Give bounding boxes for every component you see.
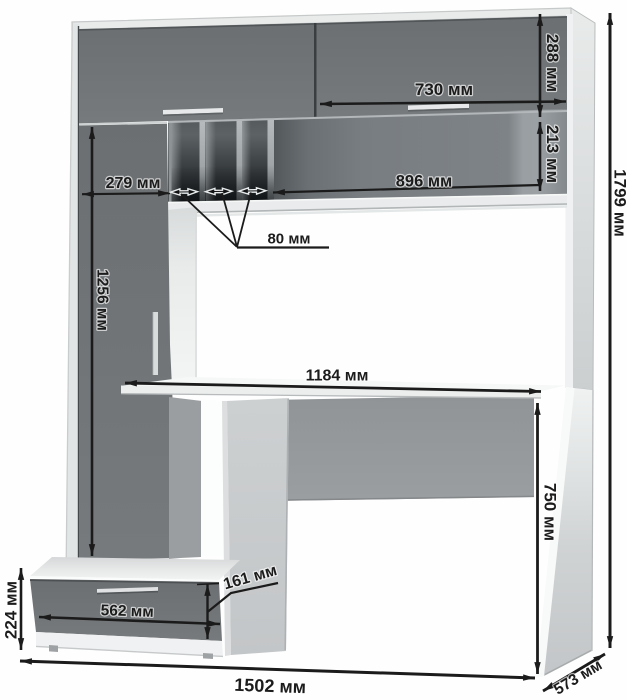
svg-text:896 мм: 896 мм (396, 173, 453, 191)
svg-text:1184 мм: 1184 мм (306, 368, 369, 385)
svg-text:1256 мм: 1256 мм (94, 269, 111, 331)
svg-text:279 мм: 279 мм (106, 175, 161, 192)
svg-text:288 мм: 288 мм (543, 34, 562, 92)
svg-text:562 мм: 562 мм (100, 602, 154, 621)
svg-text:730 мм: 730 мм (415, 80, 473, 99)
svg-text:750 мм: 750 мм (541, 483, 560, 541)
svg-text:80 мм: 80 мм (267, 231, 310, 248)
svg-text:1799 мм: 1799 мм (611, 169, 627, 237)
svg-text:1502 мм: 1502 мм (234, 675, 306, 697)
svg-text:224 мм: 224 мм (2, 581, 21, 639)
svg-text:213 мм: 213 мм (543, 125, 562, 183)
